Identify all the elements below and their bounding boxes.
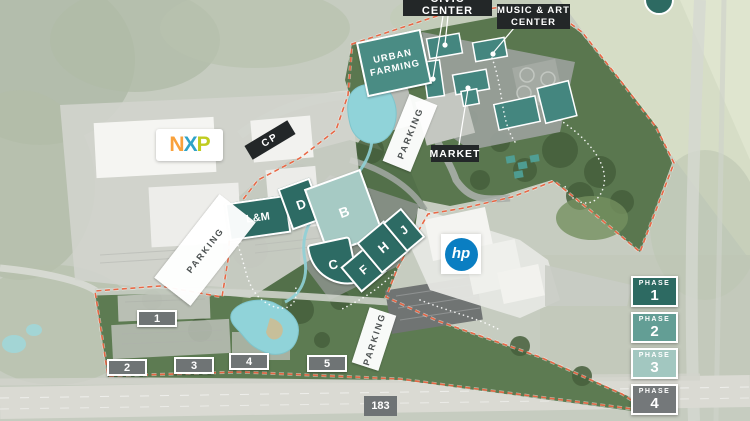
music-art-center-tag: MUSIC & ART CENTER (497, 4, 570, 29)
highway-183-label: 183 (371, 400, 389, 412)
building-d-label: D (294, 195, 308, 212)
nxp-logo: NXP (156, 129, 223, 161)
building-h-label: H (375, 238, 392, 256)
legend-phase-4: PHASE 4 (631, 384, 678, 415)
site-3: 3 (174, 357, 214, 374)
site-4: 4 (229, 353, 269, 370)
campus-master-plan-map: L&M D B C F H J URBAN FARMING CIVIC CENT… (0, 0, 750, 421)
nxp-letter-x: X (184, 133, 197, 157)
building-b-label: B (337, 203, 352, 221)
civic-center-tag: CIVIC CENTER (403, 0, 492, 16)
civic-center-label: CIVIC CENTER (403, 0, 492, 17)
nxp-letter-n: N (169, 133, 183, 157)
site-2-label: 2 (124, 362, 130, 374)
hp-logo: hp (441, 234, 481, 274)
market-label: MARKET (430, 148, 481, 160)
phase-4-number: 4 (650, 396, 658, 411)
legend-phase-3: PHASE 3 (631, 348, 678, 379)
phase-3-title: PHASE (639, 352, 671, 359)
legend-phase-2: PHASE 2 (631, 312, 678, 343)
site-1: 1 (137, 310, 177, 327)
highway-183-tag: 183 (364, 396, 397, 416)
legend-phase-1: PHASE 1 (631, 276, 678, 307)
building-j-label: J (397, 222, 411, 237)
building-c-label: C (327, 256, 339, 273)
phase-4-title: PHASE (639, 388, 671, 395)
nxp-letter-p: P (197, 133, 210, 157)
phase-3-number: 3 (650, 360, 658, 375)
phase-2-title: PHASE (639, 316, 671, 323)
phase-1-title: PHASE (639, 280, 671, 287)
market-tag: MARKET (431, 145, 479, 162)
building-f-label: F (356, 262, 371, 277)
site-1-label: 1 (154, 313, 160, 325)
hp-logo-text: hp (452, 245, 470, 262)
site-5-label: 5 (324, 358, 330, 370)
music-art-center-label-line1: MUSIC & ART (497, 5, 570, 16)
site-3-label: 3 (191, 360, 197, 372)
site-4-label: 4 (246, 356, 252, 368)
parking-west-label: PARKING (184, 225, 226, 274)
phase-1-number: 1 (650, 288, 658, 303)
site-2: 2 (107, 359, 147, 376)
hp-logo-circle: hp (445, 238, 478, 271)
site-5: 5 (307, 355, 347, 372)
music-art-center-label-line2: CENTER (511, 17, 556, 28)
phase-2-number: 2 (650, 324, 658, 339)
